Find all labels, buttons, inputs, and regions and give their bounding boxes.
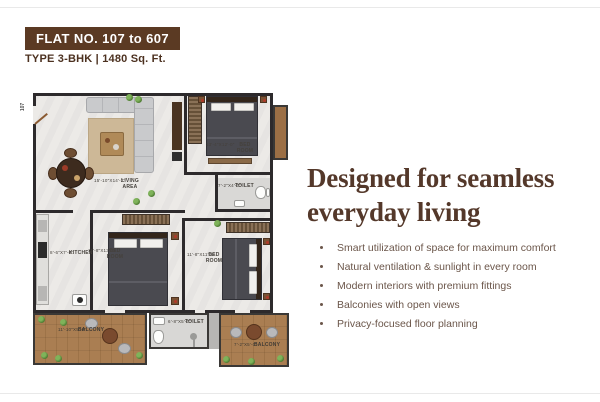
wall: [184, 93, 187, 175]
side-table: [171, 232, 179, 240]
bottom-edge-line: [0, 393, 600, 394]
tv-console: [172, 152, 182, 161]
bed-bench: [208, 158, 252, 164]
plant: [214, 220, 221, 227]
feature-item: Privacy-focused floor planning: [318, 319, 556, 330]
feature-list: Smart utilization of space for maximum c…: [318, 243, 556, 338]
wall: [182, 218, 185, 310]
plant: [223, 356, 230, 363]
washing-machine: [72, 294, 87, 306]
flat-type-line: TYPE 3-BHK | 1480 Sq. Ft.: [25, 53, 166, 65]
plant: [277, 355, 284, 362]
side-table: [263, 293, 270, 300]
ac-ledge: [273, 105, 288, 160]
stove: [38, 242, 47, 258]
kitchen-sink: [38, 220, 47, 232]
wall: [215, 209, 273, 212]
bed: [108, 232, 168, 306]
feature-item: Modern interiors with premium fittings: [318, 281, 556, 292]
coffee-table: [100, 132, 124, 156]
service-passage: [209, 313, 219, 349]
plant: [148, 190, 155, 197]
plant: [133, 198, 140, 205]
flyer-page: FLAT NO. 107 to 607 TYPE 3-BHK | 1480 Sq…: [0, 0, 600, 402]
unit-number-label: 107: [20, 103, 26, 111]
plant: [248, 358, 255, 365]
dining-chair: [64, 188, 77, 198]
toilet-wc: [255, 186, 266, 199]
feature-item: Natural ventilation & sunlight in every …: [318, 262, 556, 273]
balcony-table: [102, 328, 118, 344]
wall: [90, 210, 93, 310]
bullet-icon: [320, 322, 323, 325]
headline-line2: everyday living: [307, 195, 554, 229]
wardrobe: [122, 214, 170, 225]
plant: [136, 352, 143, 359]
side-table: [171, 297, 179, 305]
balcony-chair: [266, 327, 278, 338]
toilet-cistern: [266, 188, 270, 197]
balcony-chair: [118, 343, 131, 354]
shower-stand: [193, 339, 195, 347]
dining-table: [56, 158, 86, 188]
fridge: [38, 286, 47, 301]
bed: [222, 238, 262, 300]
sofa: [134, 97, 154, 173]
wall: [90, 210, 185, 213]
bullet-icon: [320, 265, 323, 268]
tv-unit: [172, 102, 182, 150]
wardrobe: [226, 222, 270, 233]
toilet-wc: [153, 330, 164, 344]
plant: [126, 94, 133, 101]
headline-line1: Designed for seamless: [307, 161, 554, 195]
washbasin: [153, 317, 165, 325]
wardrobe: [188, 96, 202, 144]
wall: [33, 210, 73, 213]
side-table: [198, 96, 205, 103]
plant: [41, 352, 48, 359]
balcony-table: [246, 324, 262, 340]
bullet-icon: [320, 303, 323, 306]
balcony-chair: [230, 327, 242, 338]
flat-number-badge: FLAT NO. 107 to 607: [25, 27, 180, 50]
side-table: [260, 96, 267, 103]
plant: [135, 96, 142, 103]
plant: [55, 355, 62, 362]
dining-chair: [64, 148, 77, 158]
bullet-icon: [320, 284, 323, 287]
plant: [60, 319, 67, 326]
side-table: [263, 238, 270, 245]
washbasin: [234, 200, 245, 207]
floor-plan: 107: [22, 90, 292, 372]
feature-item: Balconies with open views: [318, 300, 556, 311]
wall: [185, 218, 273, 221]
top-edge-line: [0, 7, 600, 8]
wall: [184, 172, 273, 175]
feature-item: Smart utilization of space for maximum c…: [318, 243, 556, 254]
headline: Designed for seamless everyday living: [307, 161, 554, 229]
bullet-icon: [320, 246, 323, 249]
plant: [38, 316, 45, 323]
